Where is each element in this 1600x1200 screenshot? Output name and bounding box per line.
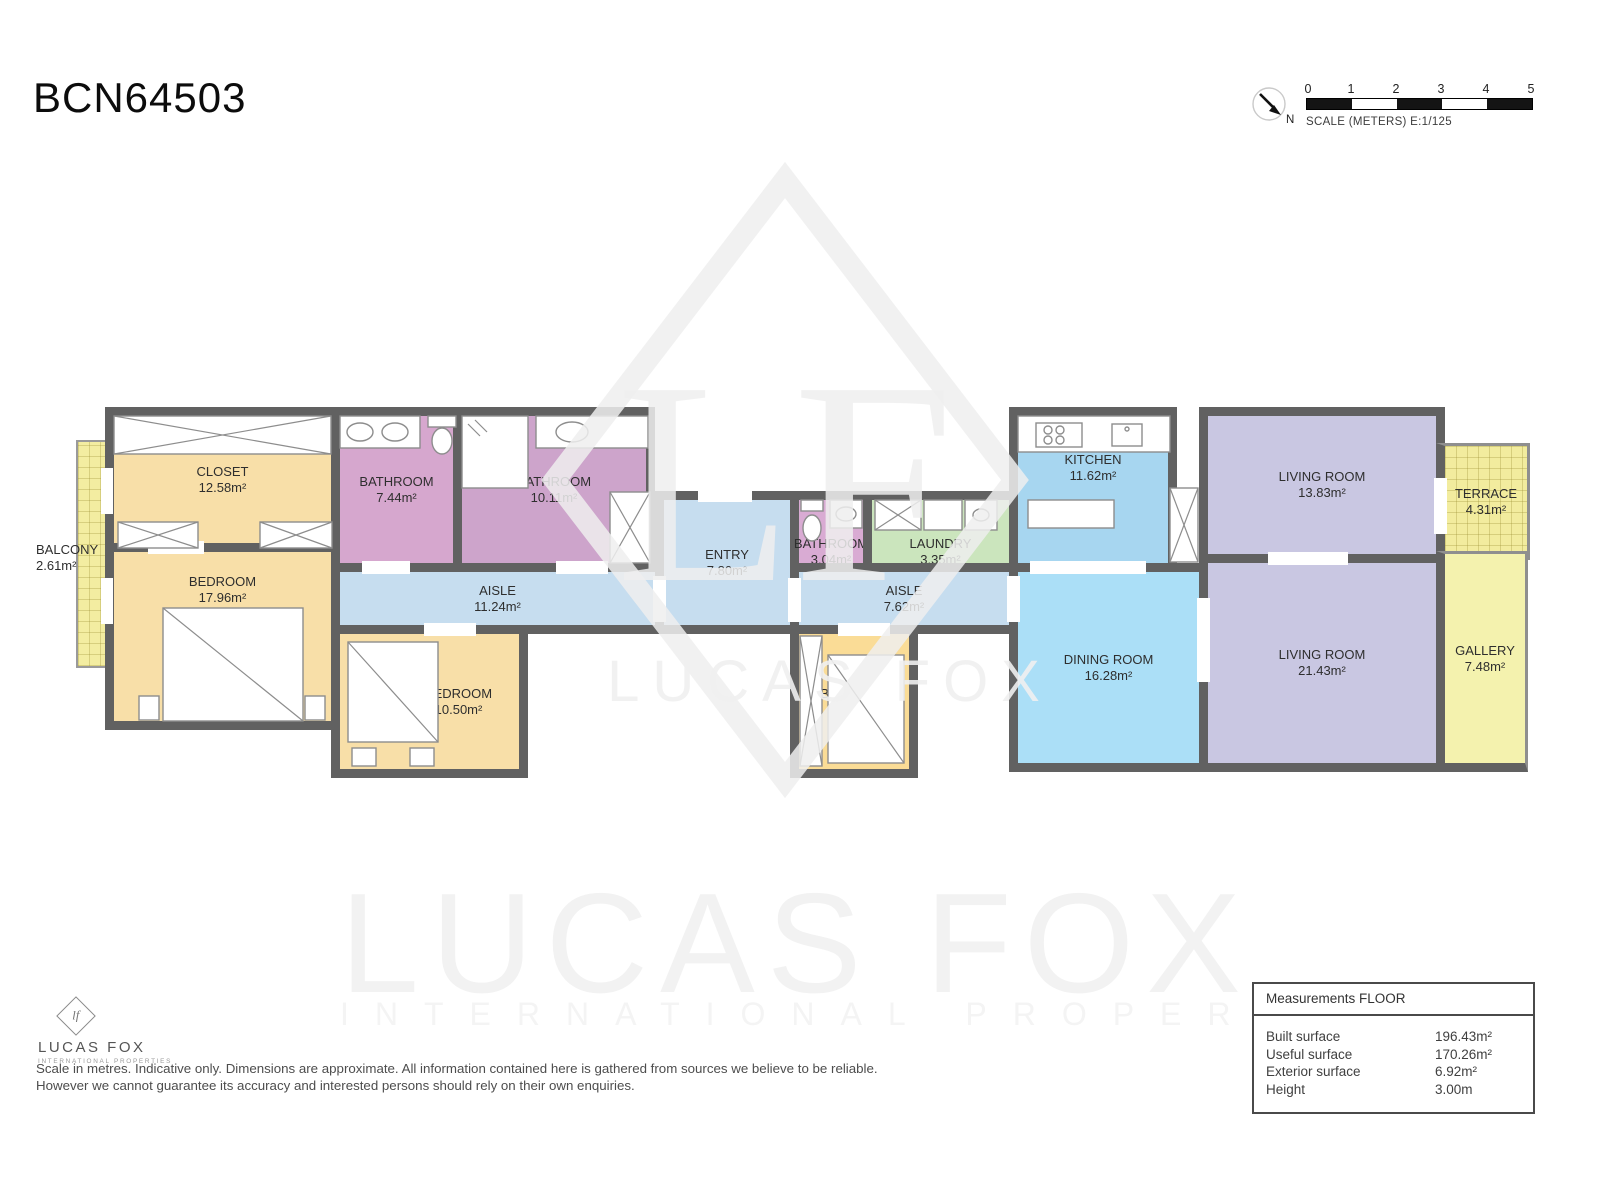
room-laundry: LAUNDRY3.35m² — [863, 491, 1018, 572]
door-opening — [1030, 561, 1146, 574]
room-bedroom-2: BEDROOM10.50m² — [331, 625, 528, 778]
room-aisle-2: AISLE7.62m² — [790, 563, 1018, 634]
room-gallery: GALLERY7.48m² — [1436, 551, 1528, 772]
door-opening — [362, 561, 410, 574]
scale-tick: 2 — [1393, 82, 1400, 96]
door-opening — [556, 561, 608, 574]
room-kitchen: KITCHEN11.62m² — [1009, 407, 1177, 572]
door-opening — [424, 623, 476, 636]
table-row: Built surface 196.43m² — [1266, 1028, 1521, 1046]
scale-tick: 4 — [1483, 82, 1490, 96]
page-title: BCN64503 — [33, 74, 246, 122]
scale-ruler — [1306, 98, 1533, 110]
door-opening — [653, 576, 666, 622]
table-row: Useful surface 170.26m² — [1266, 1046, 1521, 1064]
table-row: Height 3.00m — [1266, 1081, 1521, 1099]
room-bathroom-1: BATHROOM7.44m² — [331, 407, 462, 572]
scale-bar: 0 1 2 3 4 5 SCALE (METERS) E:1/125 — [1306, 82, 1533, 128]
measurements-table: Measurements FLOOR Built surface 196.43m… — [1252, 982, 1535, 1114]
room-terrace: TERRACE4.31m² — [1436, 443, 1530, 560]
room-closet: CLOSET12.58m² — [105, 407, 340, 552]
disclaimer-line-1: Scale in metres. Indicative only. Dimens… — [36, 1060, 878, 1077]
logo-name: LUCAS FOX — [38, 1039, 172, 1056]
room-bathroom-2: BATHROOM10.11m² — [453, 407, 655, 572]
room-bedroom-master: BEDROOM17.96m² — [105, 543, 340, 730]
scale-tick: 0 — [1305, 82, 1312, 96]
terrace-door-opening — [1434, 478, 1447, 534]
door-opening — [1197, 598, 1210, 682]
room-entry: ENTRY7.80m² — [655, 491, 799, 634]
north-label: N — [1286, 114, 1294, 126]
room-bathroom-3: BATHROOM3.04m² — [790, 491, 872, 572]
room-living-2: LIVING ROOM21.43m² — [1199, 554, 1445, 772]
scale-caption: SCALE (METERS) E:1/125 — [1306, 116, 1533, 128]
logo-diamond-icon: lf — [56, 996, 96, 1036]
room-dining: DINING ROOM16.28m² — [1009, 563, 1208, 772]
floorplan-page: BCN64503 N 0 1 2 3 4 5 SCALE (METERS) E:… — [0, 0, 1600, 1200]
door-opening — [788, 578, 801, 622]
door-opening — [148, 541, 204, 554]
scale-tick: 3 — [1438, 82, 1445, 96]
room-balcony-label: BALCONY 2.61m² — [36, 542, 98, 574]
window-opening — [101, 578, 113, 624]
disclaimer-line-2: However we cannot guarantee its accuracy… — [36, 1077, 878, 1094]
table-row: Exterior surface 6.92m² — [1266, 1063, 1521, 1081]
scale-ticks: 0 1 2 3 4 5 — [1306, 82, 1533, 97]
disclaimer: Scale in metres. Indicative only. Dimens… — [36, 1060, 878, 1094]
window-opening — [101, 468, 113, 514]
watermark-name: LUCAS FOX — [340, 862, 1220, 1026]
room-bedroom-3: BEDROOM7.99m² — [790, 625, 918, 778]
door-opening — [838, 623, 890, 636]
measurements-title: Measurements FLOOR — [1254, 984, 1533, 1016]
scale-tick: 1 — [1348, 82, 1355, 96]
door-opening — [1007, 576, 1020, 622]
lucas-fox-logo: lf LUCAS FOX INTERNATIONAL PROPERTIES — [38, 1002, 172, 1065]
watermark-tagline: INTERNATIONAL PROPERTIES — [340, 996, 1220, 1033]
room-living-1: LIVING ROOM13.83m² — [1199, 407, 1445, 563]
entry-door-opening — [698, 489, 752, 502]
scale-tick: 5 — [1528, 82, 1535, 96]
door-opening — [1268, 552, 1348, 565]
